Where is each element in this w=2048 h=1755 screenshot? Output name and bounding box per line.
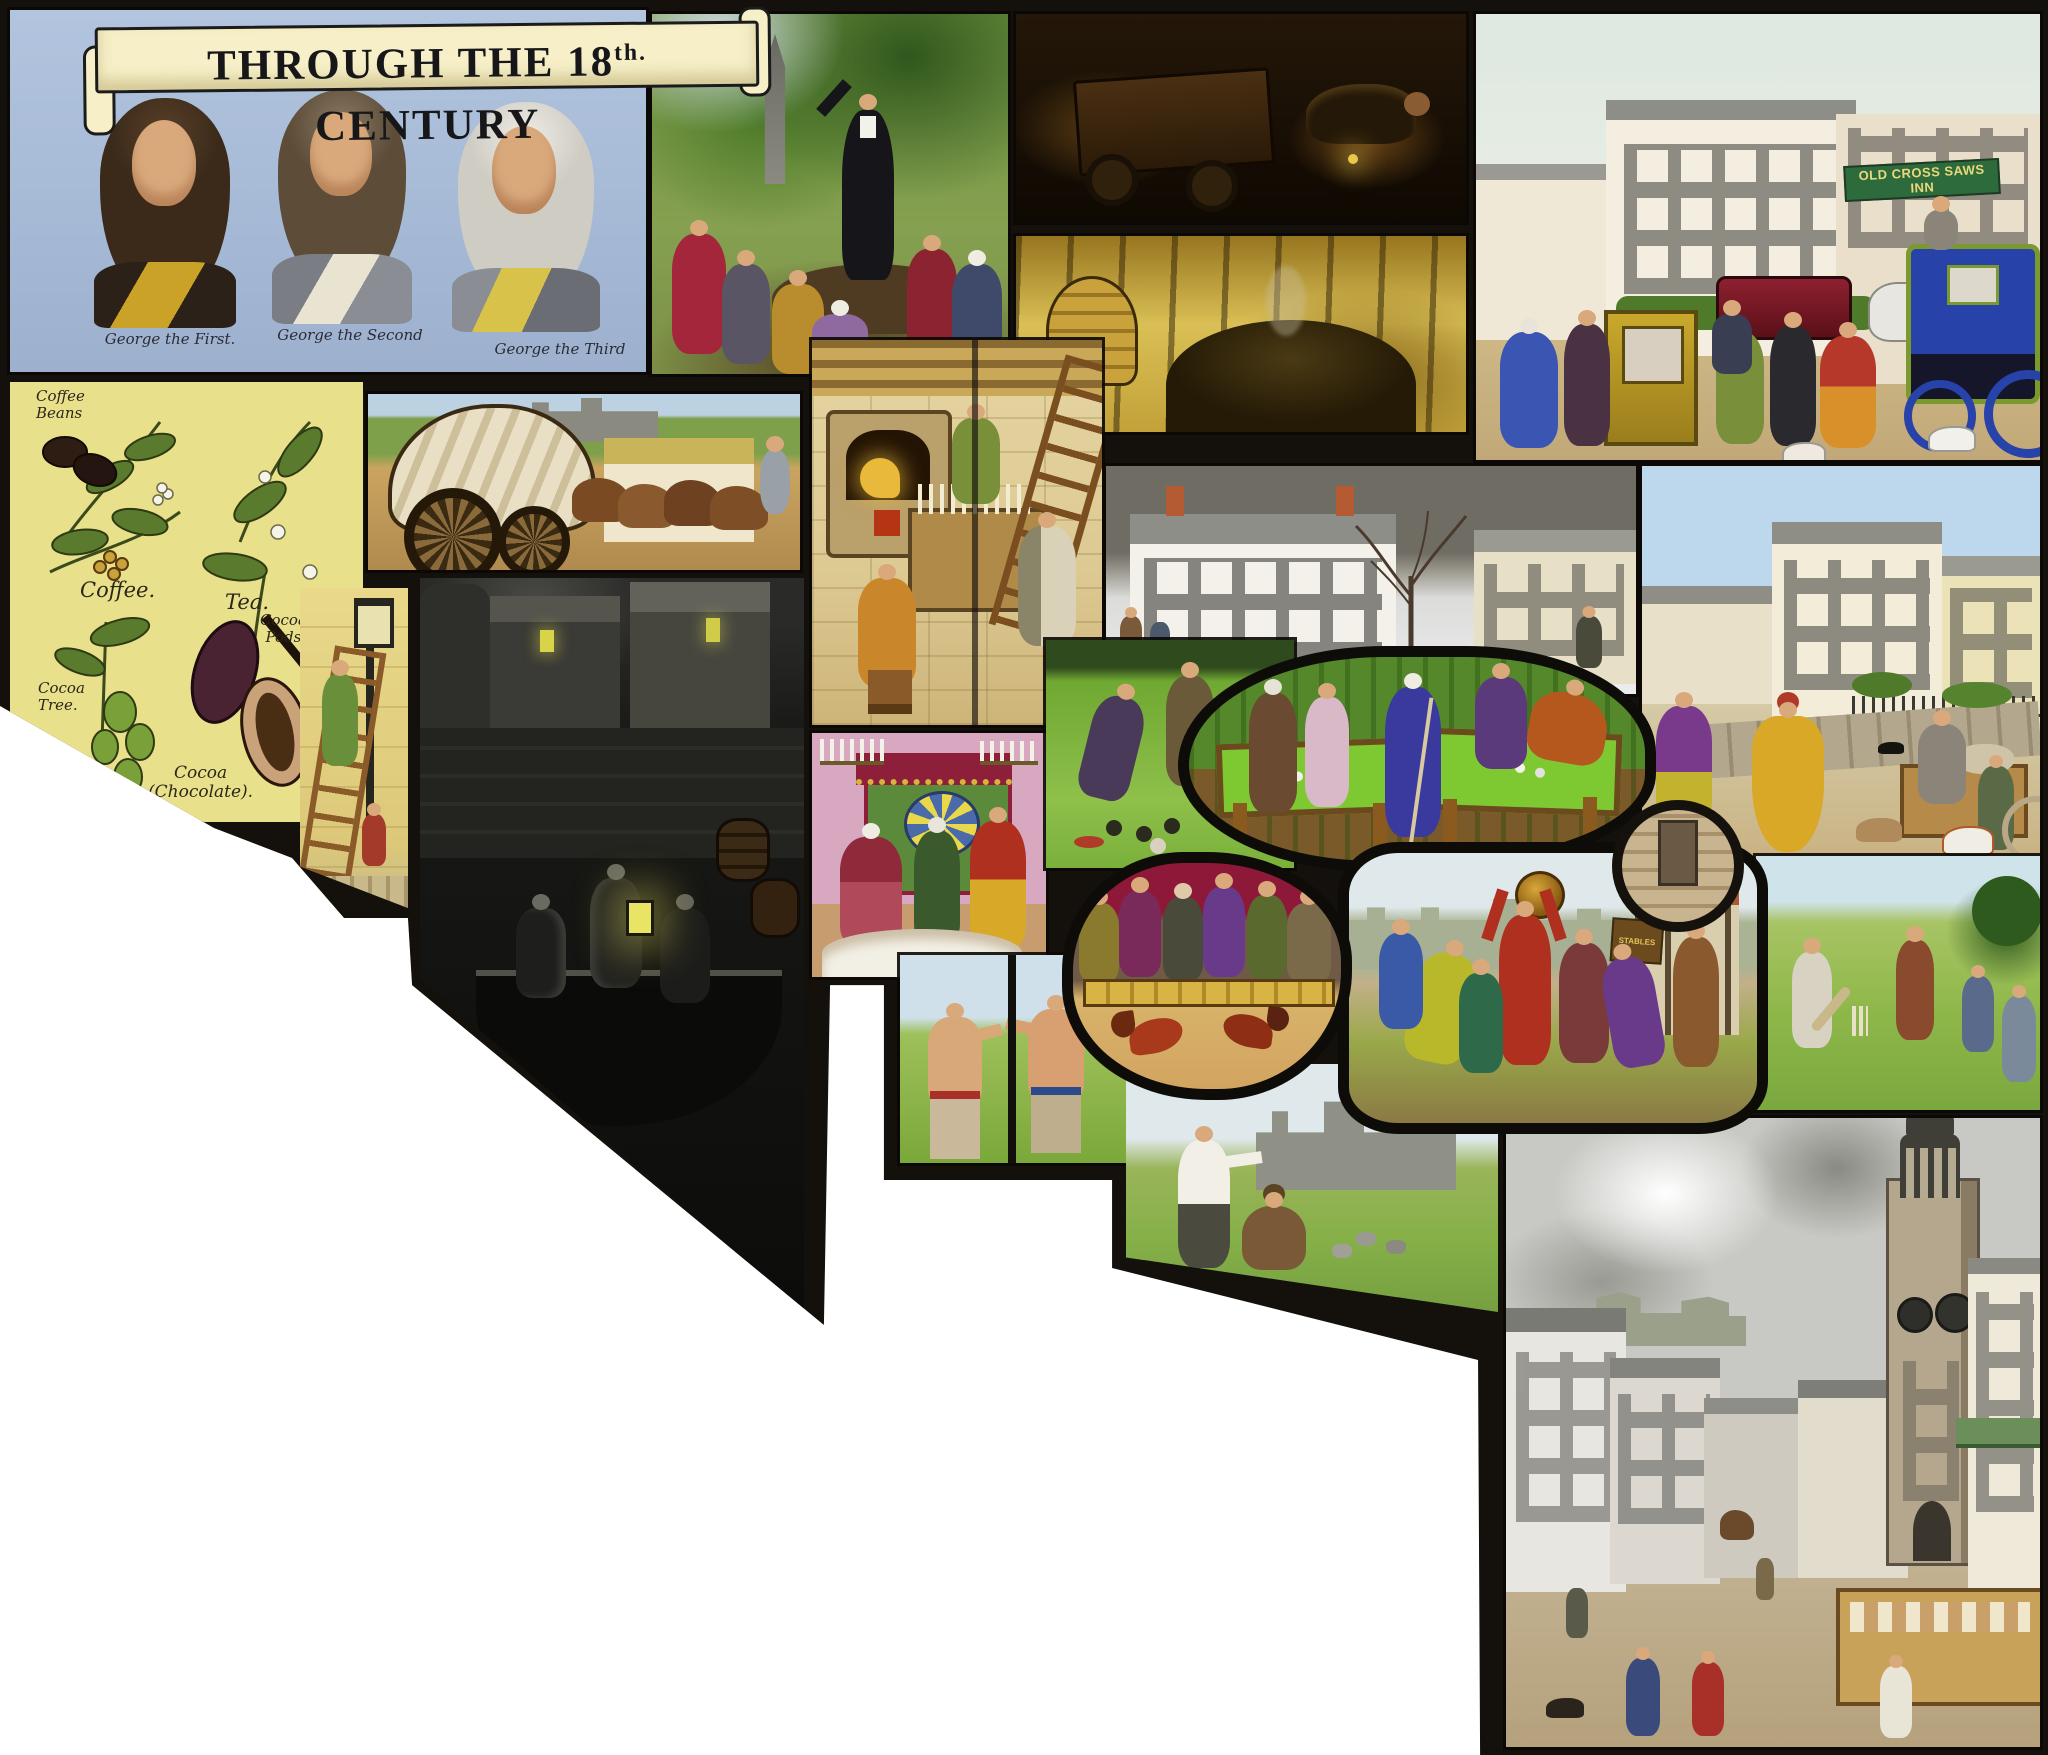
figure-head [737, 250, 755, 266]
figure [1712, 314, 1752, 374]
spectator [1163, 897, 1203, 981]
shrub [1852, 672, 1912, 698]
chandelier [980, 741, 1038, 765]
figure [1880, 1666, 1912, 1738]
figure-head [1038, 512, 1056, 528]
player-figure [1559, 943, 1609, 1063]
pit-wall [1083, 979, 1335, 1007]
figure-head [1520, 318, 1538, 334]
far-cottages [1642, 586, 1792, 704]
king-george-3-caption: George the Third [470, 340, 650, 358]
bowls-balls [1106, 820, 1122, 836]
figure-head [1131, 877, 1149, 893]
label-cocoa-tree: Cocoa Tree. [38, 680, 85, 713]
figure-head [1258, 881, 1276, 897]
small-dog [1782, 442, 1826, 460]
chandelier [820, 739, 884, 765]
figure-head [1300, 889, 1318, 905]
boxer-arm [971, 1024, 1003, 1043]
figure [1756, 1558, 1774, 1600]
fighting-cock [1221, 1012, 1275, 1051]
figure [1500, 332, 1558, 448]
figure-head [1971, 965, 1985, 978]
figure-head [1723, 300, 1741, 316]
panel-stage-wagon [368, 394, 800, 570]
barrow-man-figure [1576, 616, 1602, 668]
lady-figure [1305, 697, 1349, 807]
dog [1546, 1698, 1584, 1718]
charcoal-clamp-mound [1166, 320, 1416, 432]
figure-head [1392, 919, 1410, 935]
sedan-window [1622, 326, 1684, 384]
figure-head [1215, 873, 1233, 889]
label-cocoa-pods: Cocoa Pods [260, 612, 307, 645]
left-building [1704, 1398, 1800, 1578]
market-stalls [1836, 1588, 2040, 1706]
figure [1566, 1588, 1588, 1638]
tower-dome [1906, 1118, 1954, 1136]
cobbles [300, 876, 408, 908]
figure [1770, 326, 1816, 446]
night-house [630, 582, 770, 732]
coach-window [1947, 265, 1999, 305]
preacher-figure [842, 110, 894, 280]
small-dog [1928, 426, 1976, 452]
candle-light [1348, 154, 1358, 164]
stall-goods [1850, 1602, 2030, 1632]
figure-head [331, 660, 349, 676]
clock-tower [1886, 1178, 1980, 1566]
left-building [1506, 1308, 1626, 1592]
rider-figure [760, 450, 790, 514]
king-george-2-caption: George the Second [260, 326, 440, 344]
figure-head [1578, 310, 1596, 326]
cock-tail [1265, 1006, 1290, 1033]
figure-head [1889, 1655, 1903, 1668]
window-grid [1516, 1352, 1616, 1522]
boxing-panel-divider [1008, 955, 1016, 1163]
figure-head [862, 823, 880, 839]
king-george-1-face [132, 120, 196, 206]
stool [868, 670, 912, 714]
figure-head [1803, 938, 1821, 954]
figure-head [946, 1003, 964, 1019]
window-grid [1950, 588, 2032, 698]
figure-head [1779, 702, 1797, 718]
seated-man-figure [1242, 1206, 1306, 1270]
boxer-breeches [1031, 1087, 1081, 1153]
player-figure [1475, 677, 1527, 769]
spectator [1203, 887, 1245, 977]
panel-billiards-room [1178, 646, 1656, 872]
figure-head [1195, 1126, 1213, 1142]
figure-head [766, 436, 784, 452]
seated-boy-figure [1918, 724, 1966, 804]
figure-head [532, 894, 550, 910]
figure-head [1701, 1651, 1715, 1664]
player-figure [1379, 933, 1423, 1029]
figure-head [2012, 985, 2026, 998]
figure-head [1933, 710, 1951, 726]
wagon-wheel-small [498, 506, 570, 570]
figure-head [1516, 901, 1534, 917]
furnace-flame [860, 458, 900, 498]
tree-clump [1972, 876, 2040, 946]
player-figure [1249, 693, 1297, 813]
king-george-1-sash [94, 262, 236, 328]
lantern [626, 900, 654, 936]
window-grid [1784, 560, 1930, 690]
batsman-figure [1792, 952, 1832, 1048]
miner-head [1404, 92, 1430, 116]
figure-head [1565, 678, 1586, 697]
circular-masonry-inset [1612, 800, 1744, 932]
figure-head [1784, 312, 1802, 328]
figure-head [1675, 692, 1693, 708]
lit-window [540, 630, 554, 652]
barrel [750, 878, 800, 938]
lamplighter-figure [322, 674, 358, 766]
panel-clock-tower-high-street [1506, 1118, 2040, 1747]
player-figure [1673, 937, 1719, 1067]
panel-night-smugglers-harbour [420, 578, 804, 1312]
smuggler-figure [660, 908, 710, 1003]
wicket [1852, 1006, 1868, 1036]
sedan-chair [1604, 310, 1698, 446]
figure [1626, 1658, 1660, 1736]
figure-head [607, 864, 625, 880]
preacher-head [859, 94, 877, 110]
figure-head [1636, 1647, 1650, 1660]
smoke-wisp [1266, 266, 1306, 336]
figure-head [928, 817, 946, 833]
dog [1856, 818, 1902, 842]
window-grid [1976, 1292, 2034, 1512]
spectator [1247, 895, 1287, 979]
panel-coaching-inn-street: OLD CROSS SAWS INN [1476, 14, 2040, 460]
spectator [1119, 891, 1161, 977]
figure-head [1472, 959, 1490, 975]
figure-head [1906, 926, 1924, 942]
horse-and-rider-distant [1720, 1510, 1754, 1540]
green-awning [1956, 1418, 2040, 1448]
figure-head [690, 220, 708, 236]
shrub [1942, 682, 2012, 708]
figure [722, 264, 770, 364]
king-george-2-armour [272, 254, 412, 324]
ball-holder-figure [1499, 915, 1551, 1065]
child-figure [362, 814, 386, 866]
lit-window [706, 618, 720, 642]
figure-head [878, 564, 896, 580]
barrel [716, 818, 770, 882]
spectator [1079, 903, 1119, 983]
lady-yellow-figure [1752, 716, 1824, 852]
fire-glow [874, 510, 900, 536]
king-george-3-sash [452, 268, 600, 332]
player-figure [1459, 973, 1503, 1073]
title-banner: THROUGH THE 18th. CENTURY [95, 21, 760, 94]
night-house [490, 596, 620, 732]
mural-artwork: George the First. George the Second Geor… [0, 0, 2048, 1755]
street-lamp [354, 598, 394, 648]
cock-tail [1109, 1010, 1136, 1039]
preacher-raised-arm [816, 79, 852, 117]
figure-head [1989, 755, 2003, 768]
fighting-cock [1127, 1015, 1185, 1056]
label-cocoa-chocolate: Cocoa (Chocolate). [148, 764, 253, 801]
figure-head [831, 300, 849, 316]
window-grid [1624, 144, 1838, 294]
figure-head [1404, 673, 1422, 689]
fielder-figure [1962, 976, 1994, 1052]
figure [672, 234, 726, 354]
spectator-figure [2002, 996, 2036, 1082]
label-coffee-beans: Coffee Beans [36, 388, 85, 421]
black-cat [1878, 742, 1904, 754]
king-george-1-caption: George the First. [80, 330, 260, 348]
preacher-collar [860, 116, 876, 138]
fallen-stones [1356, 1232, 1376, 1246]
miner-figure [1306, 84, 1416, 144]
figure-head [1492, 663, 1510, 679]
driver-head [1932, 196, 1950, 212]
panel-theatre-interior [812, 733, 1046, 977]
chimney [1166, 486, 1184, 516]
figure-head [676, 894, 694, 910]
figure-head [1125, 607, 1137, 618]
pointing-man-figure [1178, 1140, 1230, 1268]
costumed-actor-figure [970, 821, 1026, 951]
tower-arch-door [1913, 1501, 1951, 1561]
spectator [1287, 903, 1331, 983]
panel-cricket-match [1756, 856, 2040, 1110]
bowler-figure [1074, 691, 1150, 804]
smuggler-figure [516, 908, 566, 998]
inn-sign-text: OLD CROSS SAWS INN [1845, 161, 1998, 199]
figure-head [1115, 682, 1136, 702]
worker-figure [1018, 526, 1076, 646]
figure [1820, 336, 1876, 448]
figure-head [367, 803, 381, 816]
figure-head [1090, 889, 1108, 905]
coach-driver [1924, 210, 1958, 250]
figure-head [989, 807, 1007, 823]
table-legs [1233, 803, 1247, 851]
figure [1692, 1662, 1724, 1736]
panel-hill-street-scene [1642, 466, 2040, 858]
figure [1564, 324, 1610, 446]
figure-head [968, 250, 986, 266]
banner-title: THROUGH THE 18th. CENTURY [95, 21, 760, 94]
figure-head [1265, 1192, 1283, 1208]
boxer-figure [928, 1017, 982, 1107]
figure-head [1575, 929, 1593, 945]
town-gate-tower [420, 584, 490, 734]
collage-area: George the First. George the Second Geor… [0, 0, 2048, 1755]
figure-head [1583, 606, 1596, 618]
boxer-breeches [930, 1091, 980, 1159]
tower-lantern [1900, 1134, 1960, 1198]
cricket-bat [1810, 985, 1852, 1033]
window-grid [1618, 1394, 1710, 1524]
clock-face [1897, 1297, 1933, 1333]
coal-cart-wheel [1186, 160, 1238, 212]
panel-coal-mine [1016, 14, 1466, 222]
figure-head [1839, 322, 1857, 338]
figure-head [789, 270, 807, 286]
workshop-divider [972, 340, 978, 725]
figure-head [1264, 679, 1282, 695]
banner-superscript: th. [614, 40, 647, 66]
bowler-figure [1896, 940, 1934, 1040]
red-hat-on-grass [1074, 836, 1104, 848]
figure-head [1181, 662, 1199, 678]
panel-lamplighter [300, 588, 408, 908]
window-grid [1484, 564, 1624, 656]
chimney-detail [1658, 820, 1698, 886]
dog [1942, 826, 1994, 856]
figure-head [1174, 883, 1192, 899]
tower-windows [1903, 1361, 1959, 1501]
label-coffee: Coffee. [80, 578, 155, 602]
coal-cart-wheel [1086, 154, 1138, 206]
figure-head [1318, 683, 1336, 699]
figure-head [923, 235, 941, 251]
panel-cockfighting-pit [1062, 852, 1352, 1100]
